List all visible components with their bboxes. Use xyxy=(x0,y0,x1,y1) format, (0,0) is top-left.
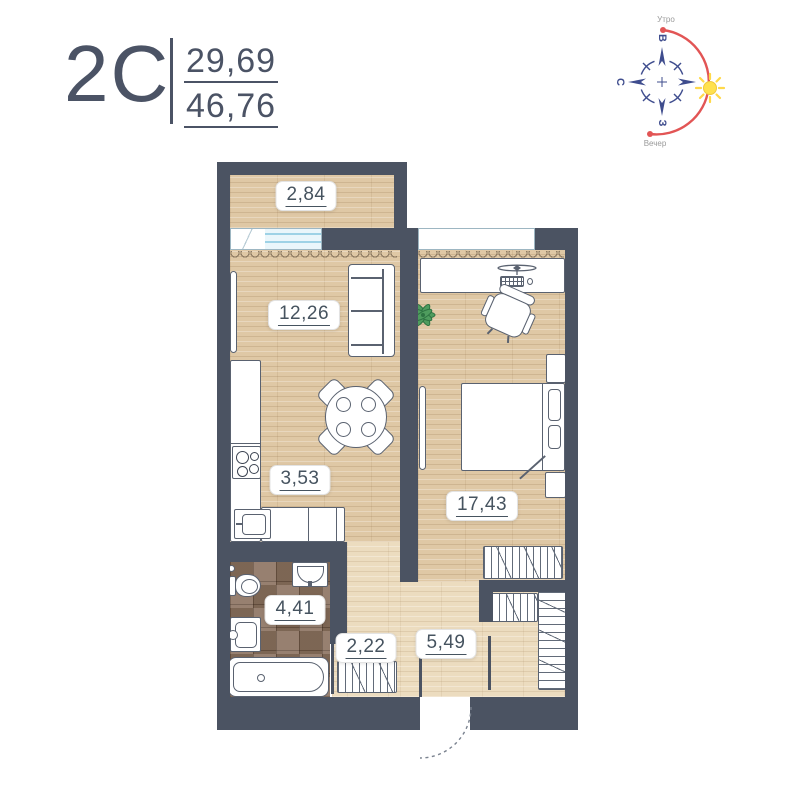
compass-ring xyxy=(641,61,682,102)
sofa xyxy=(348,264,395,357)
room-label-corridor: 5,49 xyxy=(416,629,477,659)
room-label-hallway: 2,22 xyxy=(336,633,397,663)
header-divider xyxy=(170,38,173,124)
room-label-living: 12,26 xyxy=(268,300,340,330)
sun-path-evening-dot xyxy=(647,131,653,137)
compass-dir-east: В xyxy=(656,34,668,42)
room-label-bedroom: 17,43 xyxy=(446,491,518,521)
bedroom-window xyxy=(418,228,535,250)
bathroom-sink-icon xyxy=(292,562,328,587)
door-leaf xyxy=(488,636,491,690)
wall xyxy=(470,697,578,730)
kitchen-sink-icon xyxy=(234,509,271,539)
sun-path-morning-dot xyxy=(660,27,666,33)
room-label-balcony: 2,84 xyxy=(276,181,337,211)
morning-label: Утро xyxy=(657,15,675,24)
bed xyxy=(461,383,565,471)
wall xyxy=(217,162,230,730)
pillow xyxy=(548,425,561,449)
wall xyxy=(217,162,407,175)
bathroom-door-leaf xyxy=(331,644,334,694)
area-figures: 29,69 46,76 xyxy=(184,44,278,134)
corridor-wardrobe-hanging xyxy=(491,593,538,622)
nightstand xyxy=(545,472,566,498)
washing-machine-icon xyxy=(230,617,261,652)
living-area-value: 29,69 xyxy=(184,44,278,83)
mouse-icon xyxy=(527,278,533,285)
corridor-wardrobe-shelves xyxy=(538,591,566,690)
stove-icon xyxy=(232,446,261,479)
total-area-value: 46,76 xyxy=(184,89,278,128)
compass-dir-west: З xyxy=(656,120,668,127)
wall xyxy=(400,228,418,582)
nightstand xyxy=(546,354,566,383)
sun-icon xyxy=(696,74,724,102)
page-title: 2C xyxy=(64,34,170,114)
wall xyxy=(217,697,420,730)
tv-living xyxy=(230,271,237,353)
hallway-shoe-bench xyxy=(337,661,397,693)
dining-table xyxy=(325,386,387,448)
room-label-bathroom: 4,41 xyxy=(265,595,326,625)
wall xyxy=(479,580,493,622)
monitor-icon xyxy=(494,263,540,277)
compass-rose: В С З Утро Вечер xyxy=(605,5,755,155)
living-curtain xyxy=(230,251,397,262)
wall xyxy=(565,228,578,730)
room-label-kitchen: 3,53 xyxy=(270,465,331,495)
floor-plan-page: 2C 29,69 46,76 В С З xyxy=(0,0,800,800)
pillow xyxy=(548,389,561,421)
evening-label: Вечер xyxy=(644,139,667,148)
toilet-icon xyxy=(229,573,262,599)
bedroom-wardrobe xyxy=(483,546,563,579)
compass-dir-north: С xyxy=(614,78,626,86)
entry-door-swing-arc xyxy=(413,693,483,768)
balcony-door-window xyxy=(230,228,322,250)
wall xyxy=(217,542,347,562)
kitchen-counter-bottom xyxy=(261,507,345,542)
wall xyxy=(483,580,565,592)
bathtub-icon xyxy=(228,657,329,697)
desk xyxy=(420,258,565,293)
wall xyxy=(330,542,347,644)
tv-bedroom xyxy=(419,386,426,470)
